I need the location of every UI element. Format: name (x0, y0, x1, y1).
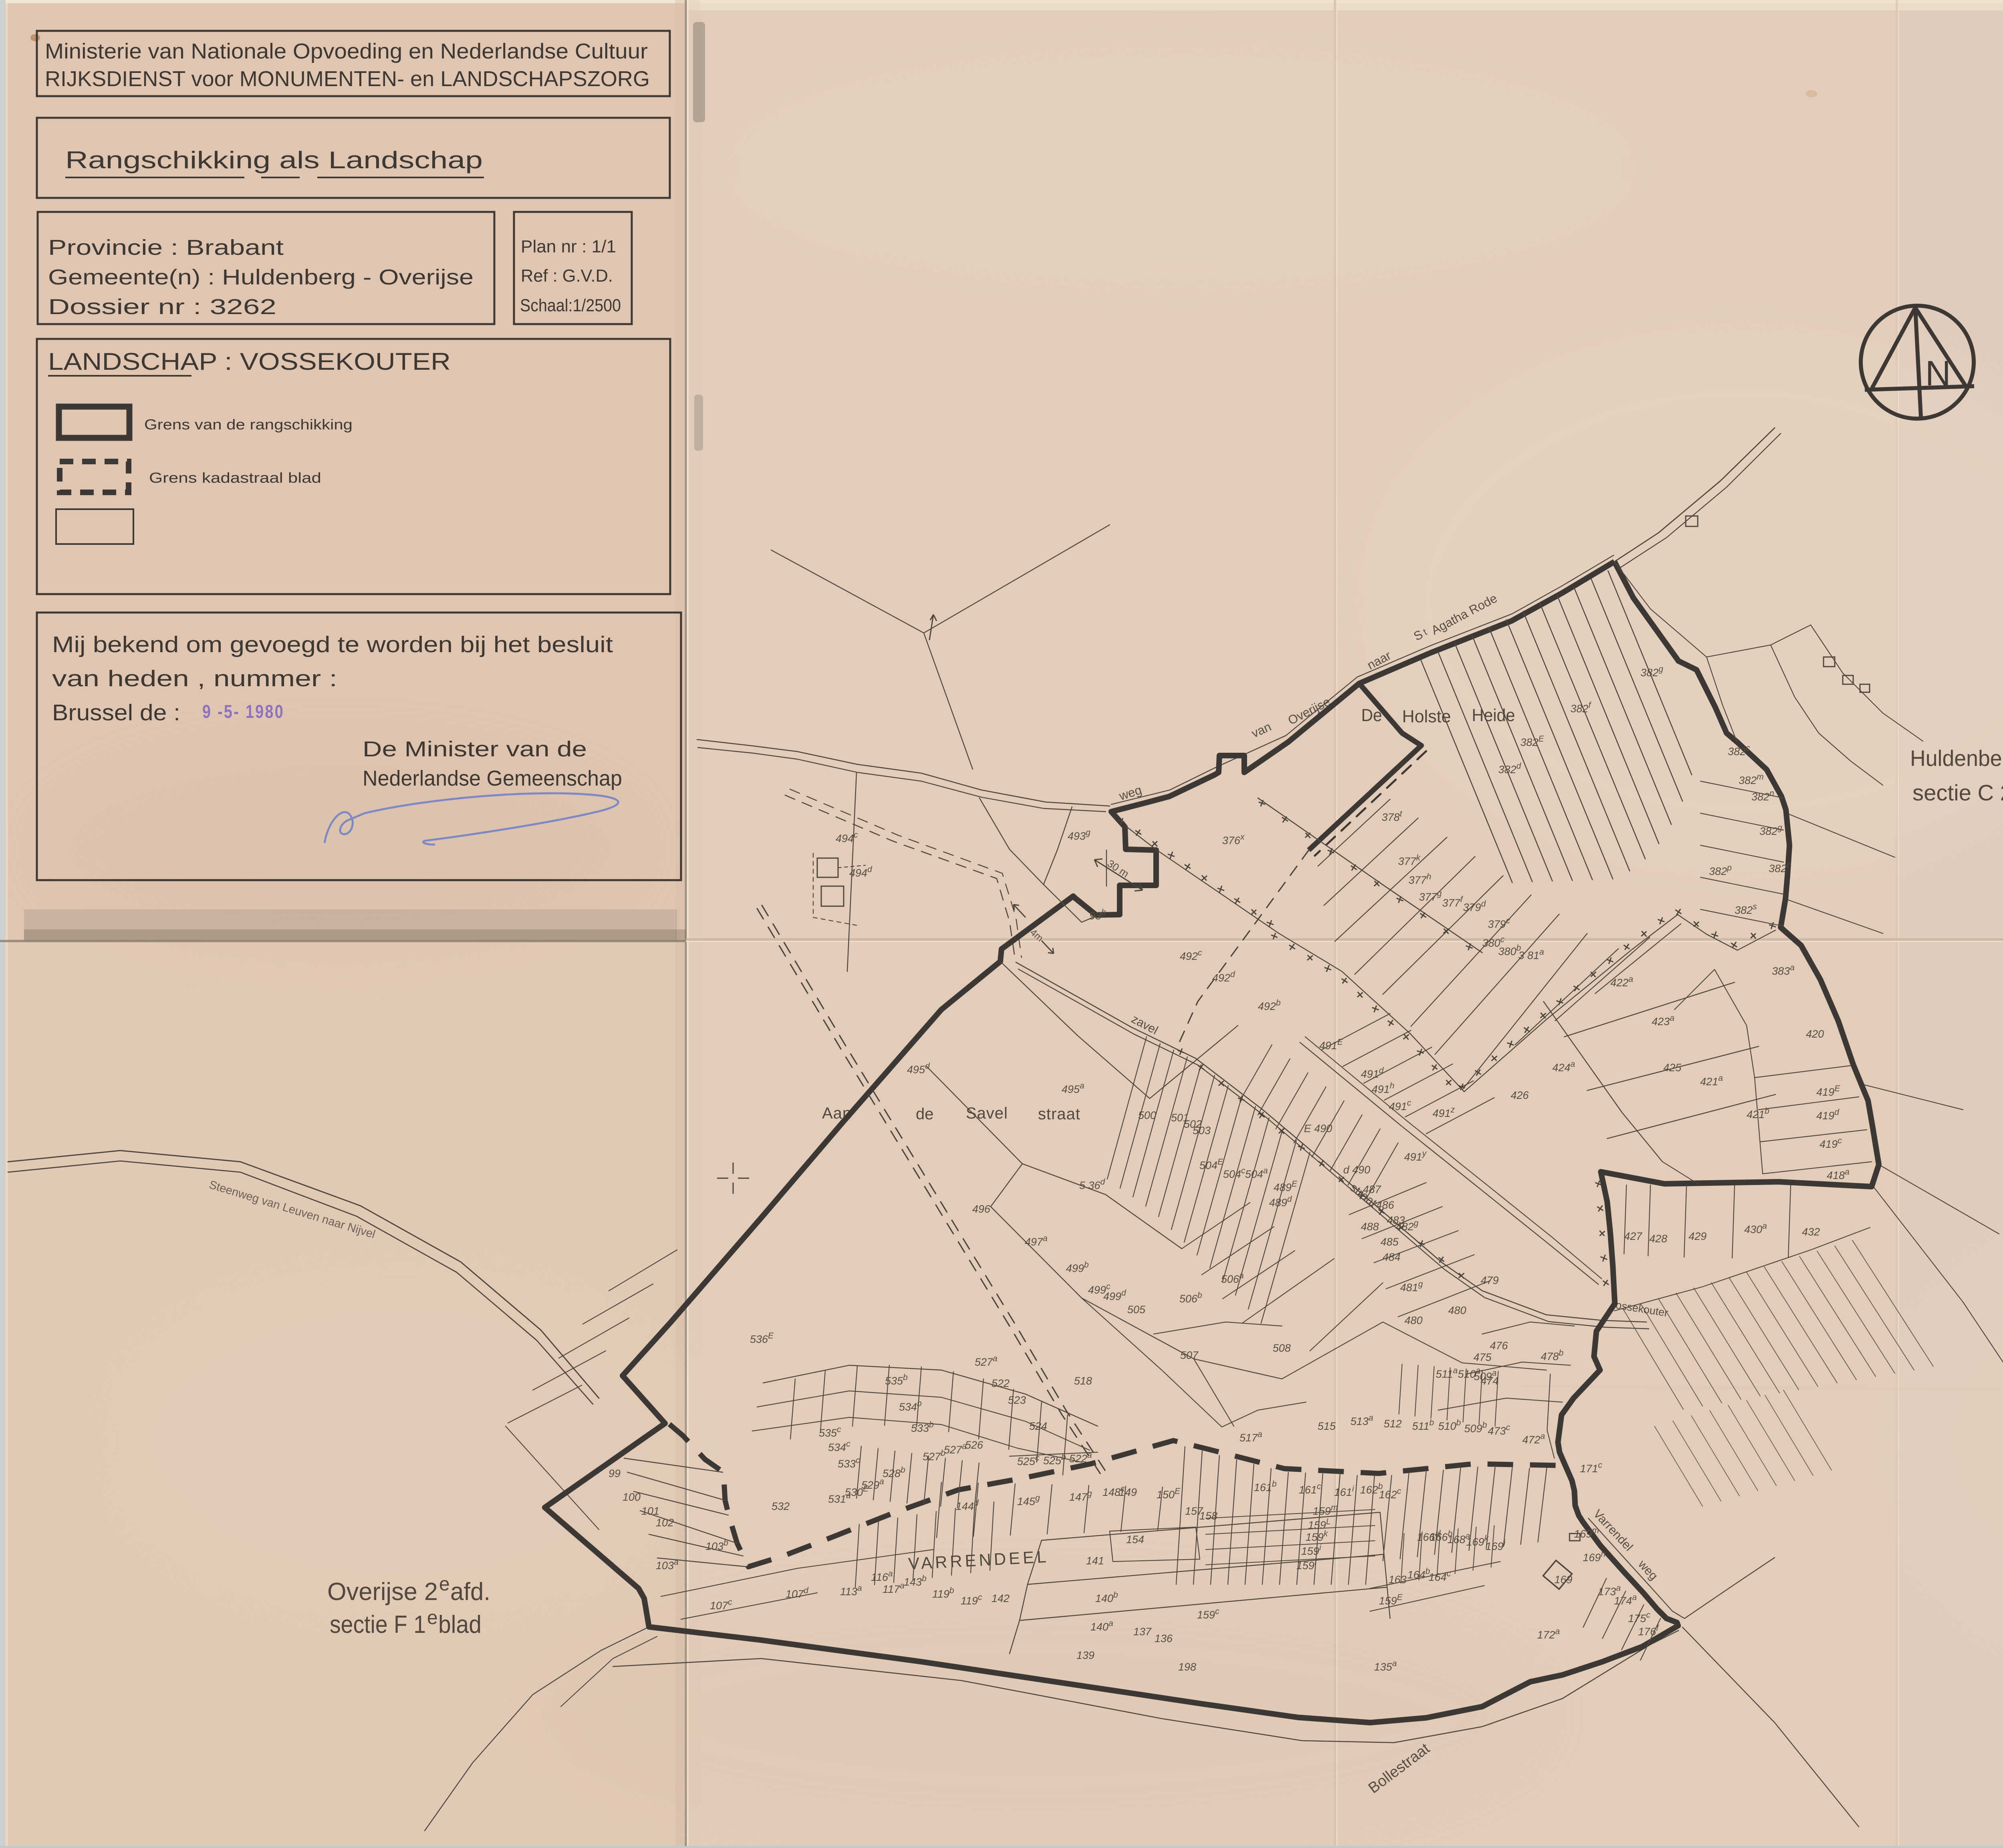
svg-text:485: 485 (1380, 1236, 1399, 1248)
svg-text:426: 426 (1511, 1089, 1529, 1101)
svg-text:169: 169 (1554, 1574, 1572, 1586)
svg-text:van heden , nummer :: van heden , nummer : (52, 666, 337, 691)
svg-text:523: 523 (1008, 1394, 1026, 1406)
svg-text:Ref : G.V.D.: Ref : G.V.D. (521, 266, 613, 286)
svg-text:420: 420 (1806, 1028, 1824, 1040)
svg-text:512: 512 (1384, 1418, 1402, 1430)
svg-text:e: e (427, 1607, 438, 1628)
svg-text:169i: 169i (1485, 1538, 1506, 1552)
svg-text:198: 198 (1178, 1661, 1196, 1673)
svg-text:Huldenberg 1: Huldenberg 1 (1910, 746, 2003, 771)
svg-text:484: 484 (1382, 1251, 1400, 1263)
svg-text:Provincie : Brabant: Provincie : Brabant (48, 236, 284, 260)
svg-text:518: 518 (1074, 1375, 1092, 1387)
svg-text:476: 476 (1490, 1340, 1508, 1352)
svg-text:Nederlandse Gemeenschap: Nederlandse Gemeenschap (363, 766, 622, 790)
svg-text:9 -5- 1980: 9 -5- 1980 (202, 701, 284, 722)
svg-text:500: 500 (1138, 1109, 1156, 1121)
svg-text:137: 137 (1133, 1626, 1152, 1638)
svg-text:141: 141 (1086, 1555, 1104, 1567)
svg-text:432: 432 (1802, 1226, 1820, 1238)
svg-text:Rangschikking als Landschap: Rangschikking als Landschap (65, 147, 483, 173)
svg-text:afd.: afd. (450, 1578, 490, 1606)
svg-text:de: de (916, 1105, 934, 1123)
svg-text:159i: 159i (1301, 1543, 1322, 1557)
svg-text:Plan nr : 1/1: Plan nr : 1/1 (521, 237, 616, 256)
svg-text:101: 101 (641, 1505, 659, 1517)
svg-text:Schaal:1/2500: Schaal:1/2500 (520, 296, 621, 315)
svg-text:161i: 161i (1334, 1484, 1354, 1498)
svg-text:Grens van de rangschikking: Grens van de rangschikking (144, 416, 353, 433)
svg-text:524: 524 (1029, 1420, 1047, 1432)
svg-text:sectie F 1: sectie F 1 (330, 1611, 426, 1638)
svg-text:515: 515 (1318, 1420, 1336, 1432)
svg-text:486: 486 (1376, 1199, 1394, 1211)
svg-text:480: 480 (1405, 1314, 1423, 1326)
svg-text:522: 522 (991, 1377, 1010, 1389)
svg-text:99: 99 (609, 1467, 621, 1479)
svg-text:425: 425 (1663, 1062, 1682, 1074)
svg-text:507: 507 (1180, 1349, 1199, 1361)
svg-text:532: 532 (772, 1500, 790, 1512)
svg-text:102: 102 (656, 1517, 674, 1529)
svg-text:Gemeente(n) : Huldenberg - Ove: Gemeente(n) : Huldenberg - Overijse (48, 265, 474, 289)
svg-text:sectie C 2: sectie C 2 (1912, 780, 2003, 805)
svg-text:100: 100 (623, 1491, 641, 1503)
svg-text:d 490: d 490 (1343, 1164, 1370, 1176)
svg-text:Brussel de :: Brussel de : (52, 700, 180, 725)
svg-text:Heide: Heide (1472, 705, 1515, 725)
svg-text:480: 480 (1448, 1304, 1466, 1316)
svg-text:475: 475 (1473, 1351, 1492, 1363)
svg-text:505: 505 (1127, 1304, 1146, 1316)
svg-text:e: e (439, 1574, 450, 1595)
svg-text:378t: 378t (1382, 809, 1403, 823)
svg-text:428: 428 (1649, 1233, 1667, 1245)
svg-text:Ministerie van Nationale Opvoe: Ministerie van Nationale Opvoeding en Ne… (45, 39, 648, 63)
svg-text:Mij bekend om gevoegd te worde: Mij bekend om gevoegd te worden bij het … (52, 632, 613, 657)
svg-text:De Minister van de: De Minister van de (363, 737, 587, 761)
svg-text:508: 508 (1273, 1342, 1291, 1354)
svg-text:blad: blad (438, 1611, 482, 1638)
svg-text:142: 142 (991, 1592, 1010, 1604)
svg-text:136: 136 (1155, 1632, 1173, 1644)
svg-text:526: 526 (965, 1439, 983, 1451)
svg-text:LANDSCHAP : VOSSEKOUTER: LANDSCHAP : VOSSEKOUTER (48, 348, 451, 375)
svg-text:N: N (1925, 353, 1951, 393)
svg-text:straat: straat (1038, 1105, 1080, 1123)
svg-text:158: 158 (1199, 1510, 1217, 1522)
svg-text:496: 496 (972, 1203, 991, 1215)
svg-text:487: 487 (1363, 1183, 1381, 1195)
svg-text:RIJKSDIENST voor MONUMENTEN- e: RIJKSDIENST voor MONUMENTEN- en LANDSCHA… (45, 67, 650, 91)
svg-text:429: 429 (1689, 1230, 1707, 1242)
svg-text:503: 503 (1193, 1125, 1211, 1137)
svg-text:163: 163 (1388, 1574, 1407, 1586)
svg-text:E 490: E 490 (1304, 1123, 1332, 1135)
svg-text:149: 149 (1119, 1486, 1137, 1498)
svg-text:Grens kadastraal blad: Grens kadastraal blad (149, 470, 321, 486)
svg-text:139: 139 (1076, 1649, 1094, 1661)
svg-text:Dossier nr : 3262: Dossier nr : 3262 (48, 295, 276, 319)
svg-text:154: 154 (1126, 1534, 1144, 1546)
svg-text:427: 427 (1624, 1230, 1642, 1242)
svg-text:488: 488 (1361, 1221, 1379, 1233)
svg-text:479: 479 (1481, 1274, 1499, 1286)
svg-text:Overijse 2: Overijse 2 (327, 1578, 438, 1606)
